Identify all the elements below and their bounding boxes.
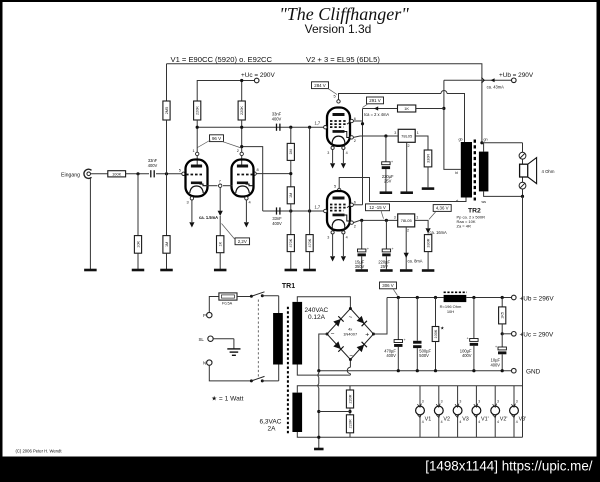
svg-text:+: + bbox=[392, 247, 394, 251]
svg-text:4,36 V: 4,36 V bbox=[436, 206, 449, 211]
svg-text:4: 4 bbox=[497, 420, 499, 424]
svg-text:+: + bbox=[365, 331, 369, 338]
svg-text:400V: 400V bbox=[490, 362, 500, 367]
svg-text:1K: 1K bbox=[219, 241, 223, 246]
svg-text:96 V: 96 V bbox=[212, 136, 221, 141]
svg-text:500V: 500V bbox=[419, 353, 429, 358]
svg-text:ca. 43mA: ca. 43mA bbox=[487, 85, 505, 90]
svg-text:[1498x1144] https://upic.me/: [1498x1144] https://upic.me/ bbox=[425, 458, 593, 473]
svg-text:3: 3 bbox=[394, 215, 396, 219]
svg-text:ws: ws bbox=[482, 200, 487, 204]
svg-text:3: 3 bbox=[327, 235, 329, 239]
svg-text:+: + bbox=[467, 337, 469, 341]
svg-text:240VAC: 240VAC bbox=[305, 307, 329, 314]
svg-text:V2 + 3 = EL95 (6DL5): V2 + 3 = EL95 (6DL5) bbox=[306, 55, 380, 64]
svg-text:78L05: 78L05 bbox=[401, 134, 413, 139]
svg-text:10K: 10K bbox=[136, 241, 140, 248]
svg-text:+Ub = 296V: +Ub = 296V bbox=[520, 296, 555, 303]
svg-text:Version 1.3d: Version 1.3d bbox=[305, 22, 372, 36]
svg-text:ca. 1.5mA: ca. 1.5mA bbox=[199, 215, 218, 220]
svg-text:bl: bl bbox=[455, 171, 458, 175]
svg-text:2: 2 bbox=[408, 144, 410, 148]
svg-text:1,7: 1,7 bbox=[315, 121, 321, 126]
svg-text:4: 4 bbox=[441, 420, 443, 424]
svg-text:220K: 220K bbox=[196, 106, 200, 115]
svg-text:★ = 1 Watt: ★ = 1 Watt bbox=[211, 394, 243, 402]
svg-text:3: 3 bbox=[459, 400, 461, 404]
svg-text:3: 3 bbox=[478, 400, 480, 404]
svg-text:5: 5 bbox=[179, 168, 181, 173]
svg-text:2A: 2A bbox=[268, 425, 277, 432]
svg-text:+Uc = 290V: +Uc = 290V bbox=[520, 331, 554, 338]
svg-text:330R: 330R bbox=[426, 154, 430, 163]
svg-text:330R: 330R bbox=[427, 238, 431, 247]
svg-text:+: + bbox=[403, 338, 405, 342]
svg-text:400V: 400V bbox=[272, 117, 282, 122]
svg-text:25V: 25V bbox=[384, 178, 392, 183]
svg-text:4 Ohm: 4 Ohm bbox=[542, 169, 555, 174]
svg-text:3: 3 bbox=[497, 400, 499, 404]
svg-text:2,2V: 2,2V bbox=[238, 239, 247, 244]
svg-text:1M: 1M bbox=[165, 242, 169, 247]
svg-text:2: 2 bbox=[354, 224, 356, 229]
svg-text:7: 7 bbox=[219, 178, 221, 183]
svg-text:V2': V2' bbox=[500, 417, 508, 423]
svg-text:rt: rt bbox=[456, 199, 458, 203]
svg-text:V1': V1' bbox=[481, 417, 489, 423]
svg-text:1: 1 bbox=[193, 148, 195, 153]
svg-text:220R: 220R bbox=[348, 394, 352, 403]
svg-text:306 V: 306 V bbox=[382, 283, 394, 288]
svg-text:Za = 4R: Za = 4R bbox=[457, 224, 471, 229]
svg-text:5: 5 bbox=[334, 94, 336, 99]
svg-text:291 V: 291 V bbox=[369, 98, 381, 103]
svg-text:4: 4 bbox=[459, 420, 461, 424]
svg-text:220R: 220R bbox=[348, 419, 352, 428]
svg-text:+Uc = 290V: +Uc = 290V bbox=[241, 72, 275, 79]
svg-text:10H: 10H bbox=[447, 309, 454, 314]
svg-text:+: + bbox=[367, 247, 369, 251]
svg-text:Eingang: Eingang bbox=[61, 173, 80, 179]
svg-text:"The Cliffhanger": "The Cliffhanger" bbox=[279, 4, 409, 24]
svg-text:350V: 350V bbox=[355, 264, 365, 269]
svg-text:1M: 1M bbox=[289, 193, 293, 198]
svg-text:GND: GND bbox=[526, 368, 541, 375]
svg-text:6: 6 bbox=[354, 200, 356, 205]
svg-text:gn: gn bbox=[484, 138, 488, 142]
svg-text:100K: 100K bbox=[434, 329, 438, 338]
svg-text:V1: V1 bbox=[425, 417, 432, 423]
svg-text:3: 3 bbox=[516, 400, 518, 404]
svg-text:0.12A: 0.12A bbox=[308, 314, 326, 321]
svg-text:+: + bbox=[495, 345, 497, 349]
svg-text:100K: 100K bbox=[112, 171, 121, 176]
svg-text:V3: V3 bbox=[462, 417, 469, 423]
svg-text:3: 3 bbox=[327, 151, 329, 155]
svg-text:ca. 16mA: ca. 16mA bbox=[430, 230, 448, 235]
svg-text:3: 3 bbox=[422, 400, 424, 404]
svg-text:2: 2 bbox=[354, 138, 356, 143]
svg-text:470K: 470K bbox=[289, 238, 293, 247]
svg-text:78L05: 78L05 bbox=[401, 218, 413, 223]
svg-text:1: 1 bbox=[416, 215, 418, 219]
svg-text:~: ~ bbox=[349, 314, 353, 321]
svg-text:3: 3 bbox=[441, 400, 443, 404]
svg-text:400V: 400V bbox=[386, 353, 396, 358]
svg-text:2: 2 bbox=[407, 228, 409, 232]
svg-text:Ica = 2 x 4mA: Ica = 2 x 4mA bbox=[364, 112, 389, 117]
svg-text:V3': V3' bbox=[519, 417, 527, 423]
svg-text:F0,5A: F0,5A bbox=[222, 302, 233, 306]
svg-text:400V: 400V bbox=[272, 221, 282, 226]
svg-text:470K: 470K bbox=[308, 238, 312, 247]
svg-text:1,7: 1,7 bbox=[315, 204, 321, 209]
svg-text:3: 3 bbox=[394, 131, 396, 135]
svg-text:8: 8 bbox=[257, 167, 259, 172]
svg-text:6,3VAC: 6,3VAC bbox=[260, 418, 282, 425]
svg-text:SL: SL bbox=[199, 337, 205, 342]
svg-text:~: ~ bbox=[349, 353, 353, 360]
svg-text:(C) 2006 Peter H. Wendt: (C) 2006 Peter H. Wendt bbox=[16, 449, 63, 454]
svg-text:12 -15 V: 12 -15 V bbox=[369, 205, 386, 210]
svg-text:6: 6 bbox=[354, 116, 356, 121]
svg-text:+: + bbox=[391, 160, 393, 164]
svg-text:2: 2 bbox=[237, 148, 239, 153]
svg-text:−: − bbox=[331, 331, 335, 338]
svg-text:1K: 1K bbox=[404, 106, 409, 111]
svg-text:gb: gb bbox=[459, 138, 463, 142]
svg-text:2M5: 2M5 bbox=[165, 107, 169, 114]
svg-text:P: P bbox=[203, 313, 206, 318]
svg-text:400V: 400V bbox=[148, 163, 158, 168]
svg-text:220K: 220K bbox=[240, 106, 244, 115]
svg-text:4: 4 bbox=[346, 151, 348, 155]
svg-text:N: N bbox=[203, 361, 206, 366]
svg-text:284 V: 284 V bbox=[314, 83, 326, 88]
svg-text:400V: 400V bbox=[462, 353, 472, 358]
svg-text:3: 3 bbox=[187, 200, 189, 205]
svg-text:ca. 8mA: ca. 8mA bbox=[408, 259, 423, 264]
svg-text:5: 5 bbox=[334, 184, 336, 189]
svg-text:4: 4 bbox=[516, 420, 518, 424]
svg-text:1: 1 bbox=[417, 131, 419, 135]
svg-text:1N4007: 1N4007 bbox=[343, 332, 358, 337]
svg-text:4: 4 bbox=[478, 420, 480, 424]
svg-text:TR1: TR1 bbox=[282, 283, 295, 290]
svg-text:1M: 1M bbox=[289, 149, 293, 154]
svg-text:V1 = E90CC (5920) o. E92CC: V1 = E90CC (5920) o. E92CC bbox=[171, 55, 273, 64]
svg-text:4: 4 bbox=[346, 235, 348, 239]
svg-text:1K5: 1K5 bbox=[501, 312, 505, 319]
svg-text:V2: V2 bbox=[443, 417, 450, 423]
svg-text:4: 4 bbox=[422, 420, 424, 424]
svg-text:+Ub = 290V: +Ub = 290V bbox=[499, 72, 534, 79]
svg-text:25V: 25V bbox=[381, 264, 389, 269]
